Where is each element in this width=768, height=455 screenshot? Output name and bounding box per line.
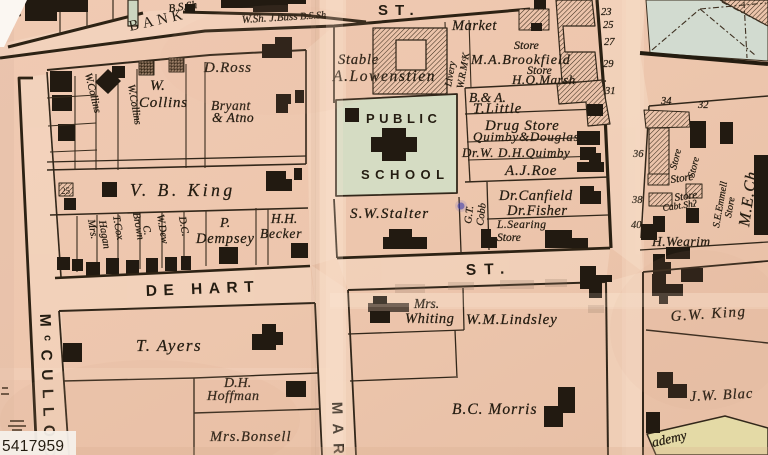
svg-text:W.M.Lindsley: W.M.Lindsley — [466, 312, 558, 328]
svg-text:P.: P. — [219, 216, 230, 231]
svg-text:29: 29 — [603, 59, 614, 70]
svg-text:25: 25 — [61, 186, 71, 196]
svg-text:H.Wearim: H.Wearim — [651, 234, 711, 249]
svg-text:Dr.W. D.H.Quimby: Dr.W. D.H.Quimby — [461, 145, 570, 160]
svg-text:ST.: ST. — [466, 260, 513, 279]
svg-text:V. B. King: V. B. King — [130, 180, 236, 200]
svg-text:32: 32 — [697, 100, 709, 111]
svg-text:Market: Market — [451, 18, 497, 34]
svg-text:27: 27 — [604, 37, 615, 48]
svg-text:SCHOOL: SCHOOL — [361, 167, 450, 182]
svg-text:Quimby&Douglas: Quimby&Douglas — [473, 129, 580, 144]
svg-text:23: 23 — [601, 7, 612, 18]
svg-text:5417959: 5417959 — [2, 438, 64, 455]
svg-text:Store: Store — [514, 38, 540, 52]
svg-text:PUBLIC: PUBLIC — [366, 111, 441, 126]
svg-text:34: 34 — [660, 96, 672, 107]
svg-text:Store: Store — [497, 232, 521, 244]
svg-text:Dr.Canfield: Dr.Canfield — [498, 188, 573, 204]
svg-text:Dr.Fisher: Dr.Fisher — [506, 203, 568, 219]
svg-text:A.J.Roe: A.J.Roe — [504, 163, 557, 179]
svg-text:W.: W. — [150, 78, 165, 94]
svg-text:31: 31 — [604, 86, 616, 97]
svg-text:L.Searing: L.Searing — [496, 219, 547, 231]
svg-text:ST.: ST. — [378, 2, 421, 19]
svg-text:T. Ayers: T. Ayers — [136, 336, 202, 355]
svg-text:25: 25 — [603, 20, 614, 31]
svg-text:Whiting: Whiting — [405, 311, 454, 327]
svg-text:C.: C. — [140, 225, 153, 236]
svg-text:T.Little: T.Little — [473, 101, 522, 117]
svg-text:Becker: Becker — [260, 226, 302, 241]
svg-text:Dempsey: Dempsey — [195, 231, 255, 247]
svg-text:H.O.Marsh: H.O.Marsh — [511, 72, 576, 87]
svg-text:M.A.Brookfield: M.A.Brookfield — [470, 53, 571, 68]
svg-text:H.H.: H.H. — [270, 211, 297, 226]
svg-text:S.W.Stalter: S.W.Stalter — [350, 206, 429, 222]
svg-text:B.C. Morris: B.C. Morris — [452, 401, 538, 418]
svg-text:Collins: Collins — [139, 95, 188, 111]
